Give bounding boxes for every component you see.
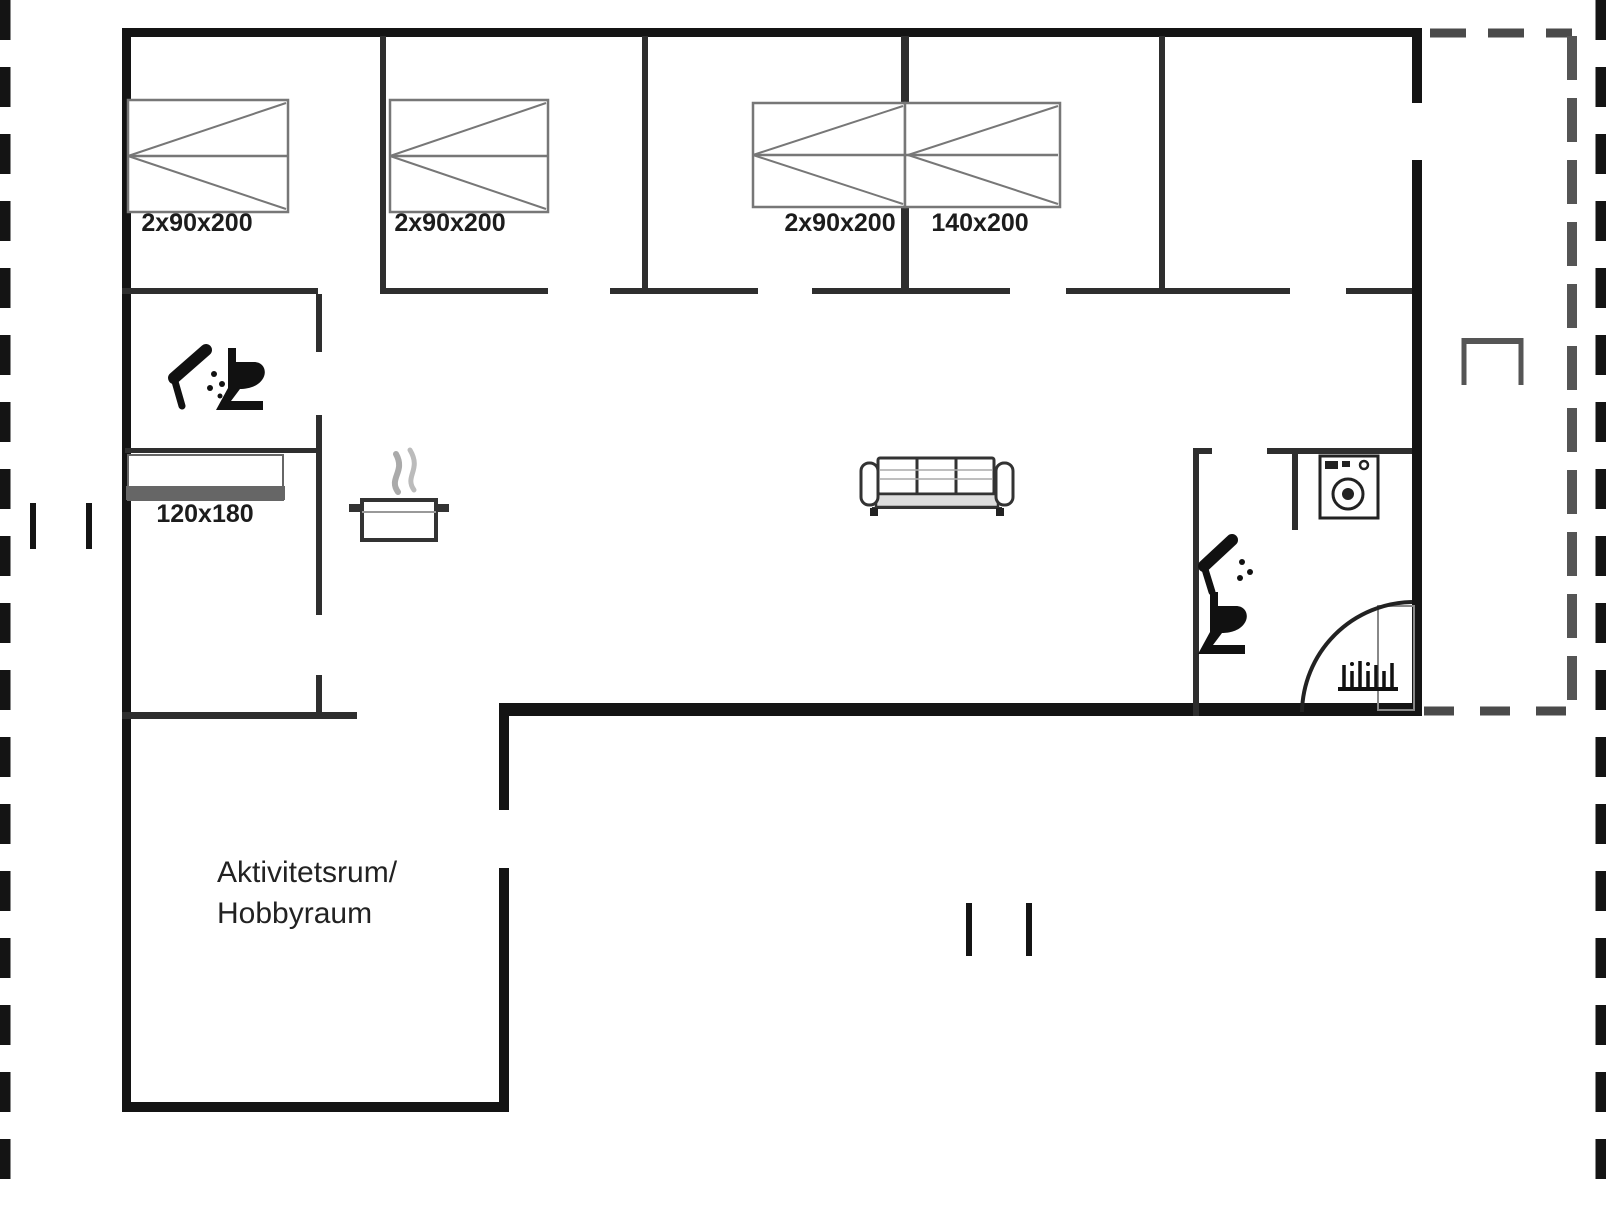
bed-double-1: [128, 100, 288, 212]
sofa-back: [878, 458, 994, 494]
pot-handle-right: [436, 504, 449, 512]
mark-dot-b: [1366, 662, 1370, 666]
wall-bath2-top-seg2: [1267, 448, 1412, 454]
wall-corridor-seg5: [1066, 288, 1290, 294]
cooking-pot-icon: [349, 450, 449, 540]
bathroom-right-icons: [1198, 540, 1253, 654]
shower-head: [174, 350, 206, 378]
wall-corridor-seg1: [122, 288, 318, 294]
boundary-ticks: [30, 503, 1032, 956]
bed5-headband: [126, 486, 285, 500]
toilet-icon: [1198, 592, 1247, 654]
wall-main-bottom: [499, 703, 1422, 716]
steam-line: [410, 450, 414, 490]
wall-corridor-seg2: [384, 288, 548, 294]
bed3-size-label: 2x90x200: [765, 209, 915, 238]
bed5-size-label: 120x180: [130, 500, 280, 529]
activity-room-label: Aktivitetsrum/ Hobbyraum: [217, 852, 397, 934]
sofa-leg-left: [870, 508, 878, 516]
sofa-seat: [876, 494, 998, 507]
terrace-grill-bracket: [1462, 338, 1523, 385]
wall-bath2-left: [1193, 448, 1199, 716]
wall-divider-bed1-bed2: [380, 36, 386, 294]
wall-top: [122, 28, 1422, 37]
wall-bath1-right-lower: [316, 675, 322, 718]
wall-bath2-top-seg1: [1193, 448, 1212, 454]
toilet-icon: [216, 348, 265, 410]
wall-activity-bottom: [122, 1102, 508, 1112]
bed2-size-label: 2x90x200: [375, 209, 525, 238]
spray-dot: [219, 381, 225, 387]
wall-bath1-right-mid: [316, 415, 322, 615]
bathroom-left-icons: [174, 348, 265, 410]
sofa-armrest-left: [861, 463, 878, 505]
wm-panel-button: [1342, 461, 1350, 467]
wall-bath1-bottom: [125, 448, 318, 453]
washing-machine-icon: [1320, 456, 1378, 518]
bed-double-3: [753, 103, 905, 207]
wall-right-upper: [1412, 28, 1422, 103]
shower-tray: [1378, 606, 1414, 710]
sofa-icon: [861, 458, 1013, 516]
wall-utility-niche: [1292, 448, 1298, 530]
tick-left-b: [86, 503, 92, 549]
pot-body: [362, 500, 436, 540]
bed-single-5: [126, 455, 285, 500]
shower-icon: [1204, 540, 1253, 592]
wall-bath1-right-upper: [316, 294, 322, 352]
spray-dot: [218, 394, 223, 399]
mark-dot-a: [1350, 662, 1354, 666]
wall-corridor-seg4: [812, 288, 1010, 294]
floor-plan-drawing: [0, 0, 1606, 1205]
wall-activity-right-lower: [499, 868, 509, 1112]
wall-corridor-seg3: [610, 288, 758, 294]
bed-double-2: [390, 100, 548, 212]
tick-bottom-a: [966, 903, 972, 956]
spray-dot: [211, 371, 217, 377]
shower-head: [1204, 540, 1232, 566]
tick-left-a: [30, 503, 36, 549]
tick-bottom-b: [1026, 903, 1032, 956]
activity-room-label-line1: Aktivitetsrum/: [217, 852, 397, 893]
wall-divider-bed2-bed3: [642, 36, 648, 294]
wall-divider-bed4-hall: [1159, 36, 1165, 294]
wall-corridor-seg6: [1346, 288, 1412, 294]
bed1-size-label: 2x90x200: [122, 209, 272, 238]
pot-handle-left: [349, 504, 362, 512]
shower-arm: [1204, 566, 1212, 592]
spray-dot: [1237, 575, 1243, 581]
door-swing-arc: [1302, 602, 1412, 712]
toilet-silhouette: [1198, 592, 1247, 654]
activity-room-label-line2: Hobbyraum: [217, 893, 397, 934]
spray-dot: [1239, 559, 1245, 565]
wall-activity-right-upper: [499, 714, 509, 810]
terrace-outline: [1424, 33, 1572, 714]
shower-icon: [174, 350, 225, 406]
shower-arm: [174, 378, 182, 406]
sofa-leg-right: [996, 508, 1004, 516]
wm-drum-center: [1342, 488, 1354, 500]
illegible-text-mark: [1338, 661, 1398, 689]
floor-plan-canvas: 2x90x200 2x90x200 2x90x200 140x200 120x1…: [0, 0, 1606, 1205]
wall-activity-top: [122, 712, 357, 719]
spray-dot: [207, 385, 213, 391]
steam-line: [395, 454, 399, 492]
spray-dot: [1247, 569, 1253, 575]
bed4-size-label: 140x200: [910, 209, 1050, 238]
toilet-silhouette: [216, 348, 265, 410]
bed-double-4: [905, 103, 1060, 207]
wm-panel-button: [1325, 461, 1338, 469]
sofa-armrest-right: [996, 463, 1013, 505]
beds: [126, 100, 1060, 500]
